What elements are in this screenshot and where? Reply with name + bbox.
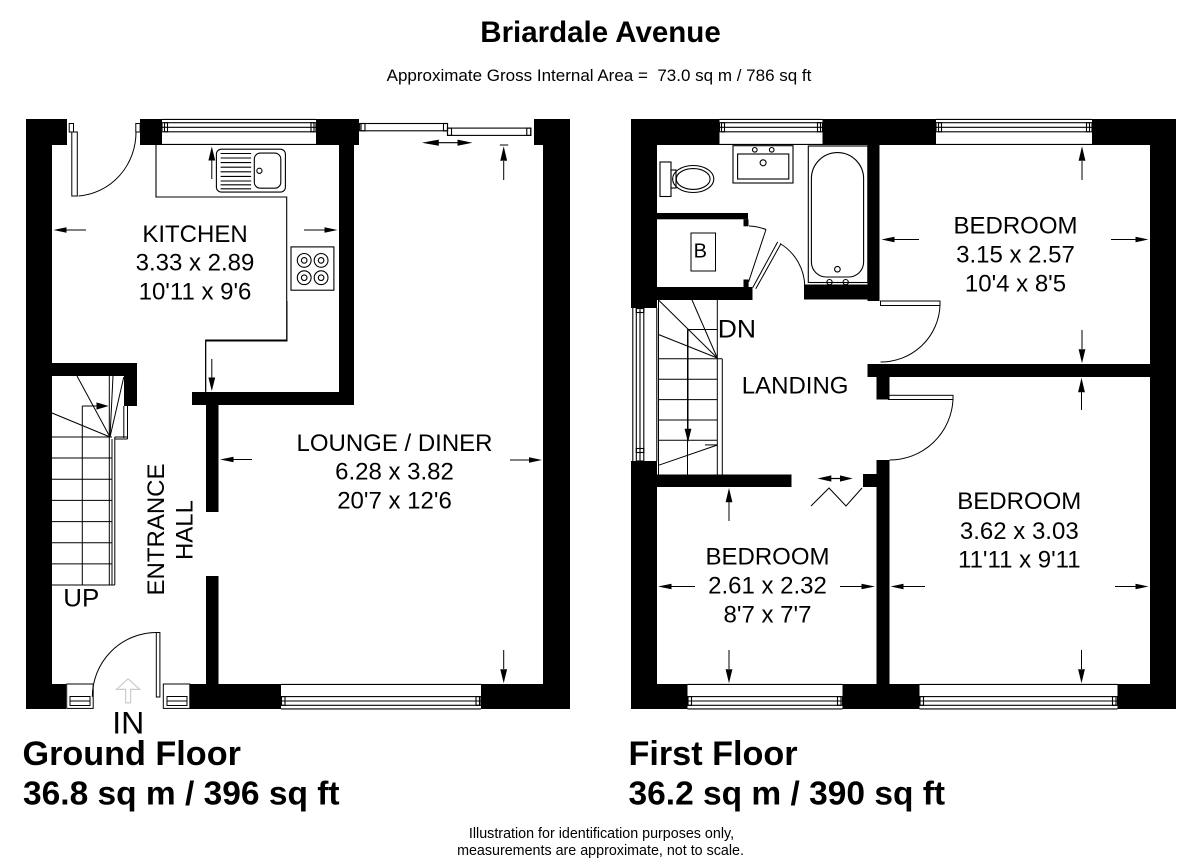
svg-text:Briardale Avenue: Briardale Avenue bbox=[480, 16, 720, 49]
svg-text:2.61 x 2.32: 2.61 x 2.32 bbox=[708, 573, 827, 600]
svg-text:3.62 x 3.03: 3.62 x 3.03 bbox=[960, 518, 1079, 545]
svg-text:BEDROOM: BEDROOM bbox=[953, 212, 1077, 239]
svg-text:B: B bbox=[694, 241, 707, 263]
svg-text:3.15 x 2.57: 3.15 x 2.57 bbox=[956, 241, 1075, 268]
svg-text:ENTRANCE: ENTRANCE bbox=[143, 463, 170, 595]
svg-text:36.8 sq m / 396 sq ft: 36.8 sq m / 396 sq ft bbox=[23, 776, 340, 813]
svg-text:11'11 x 9'11: 11'11 x 9'11 bbox=[958, 546, 1081, 573]
svg-text:measurements are approximate,: measurements are approximate, not to sca… bbox=[457, 843, 744, 859]
svg-text:Approximate Gross Internal Are: Approximate Gross Internal Area = 73.0 s… bbox=[387, 66, 812, 85]
svg-text:Ground Floor: Ground Floor bbox=[23, 735, 241, 773]
svg-text:Illustration for identificatio: Illustration for identification purposes… bbox=[469, 826, 734, 842]
svg-text:BEDROOM: BEDROOM bbox=[705, 544, 829, 571]
svg-text:First Floor: First Floor bbox=[629, 735, 798, 773]
svg-text:KITCHEN: KITCHEN bbox=[142, 221, 247, 248]
svg-text:HALL: HALL bbox=[172, 500, 199, 560]
svg-text:20'7 x 12'6: 20'7 x 12'6 bbox=[337, 487, 452, 514]
svg-text:10'11 x 9'6: 10'11 x 9'6 bbox=[139, 278, 252, 305]
svg-text:6.28 x 3.82: 6.28 x 3.82 bbox=[335, 459, 454, 486]
svg-text:LOUNGE / DINER: LOUNGE / DINER bbox=[296, 430, 492, 457]
svg-text:LANDING: LANDING bbox=[742, 372, 849, 399]
svg-text:BEDROOM: BEDROOM bbox=[957, 488, 1081, 515]
svg-text:36.2 sq m / 390 sq ft: 36.2 sq m / 390 sq ft bbox=[629, 776, 946, 813]
svg-text:8'7 x 7'7: 8'7 x 7'7 bbox=[724, 601, 812, 628]
svg-text:3.33 x 2.89: 3.33 x 2.89 bbox=[136, 250, 255, 277]
svg-text:10'4 x 8'5: 10'4 x 8'5 bbox=[965, 270, 1066, 297]
svg-text:DN: DN bbox=[718, 316, 756, 343]
svg-text:UP: UP bbox=[63, 584, 99, 612]
